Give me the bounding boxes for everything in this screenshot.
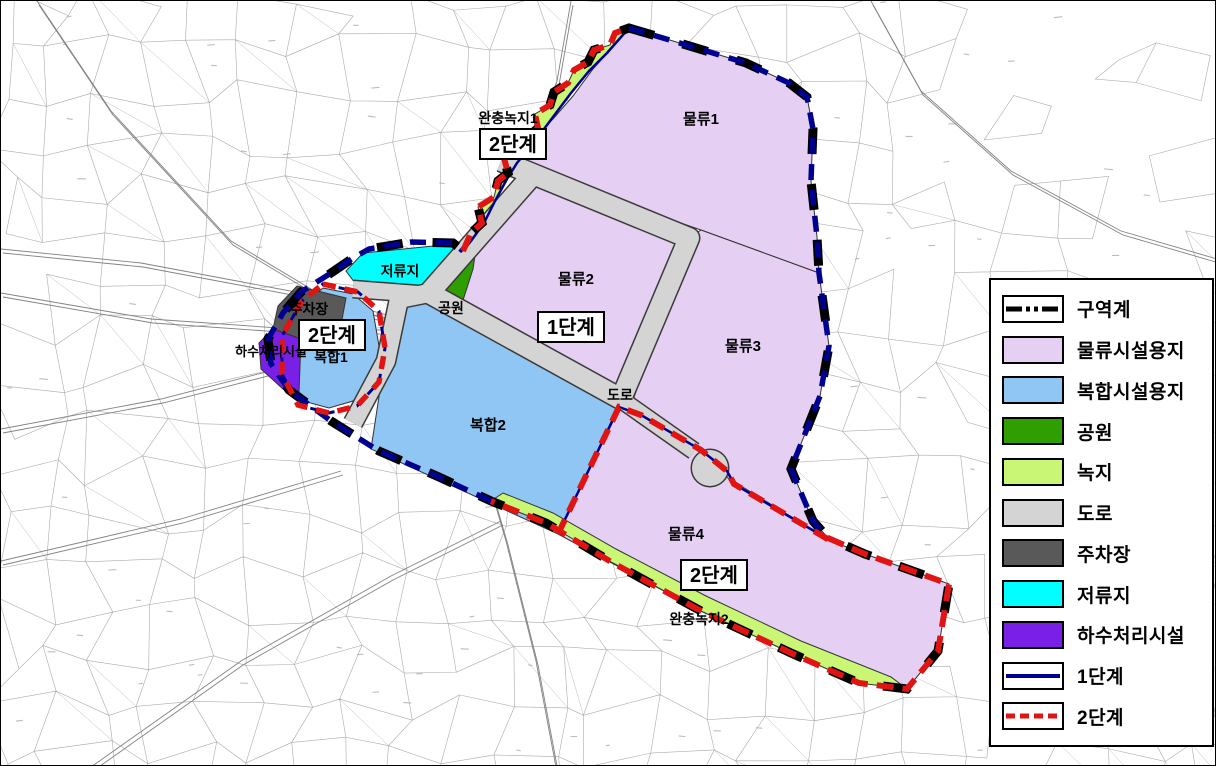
zone-label-sewage-plant: 하수처리시설 bbox=[235, 344, 307, 359]
zone-label-parking-lot: 주차장 bbox=[290, 301, 329, 317]
legend-item-detention-pond: 저류지 bbox=[991, 580, 1212, 608]
legend-swatch-road bbox=[1002, 499, 1064, 527]
zone-polygons bbox=[259, 28, 949, 689]
land-use-plan-map: 완충녹지1물류1저류지물류2주차장공원물류3하수처리시설복합1도로복합2물류4완… bbox=[0, 0, 1216, 766]
phase-marker-label: 2단계 bbox=[690, 564, 738, 587]
zone-label-logistics-4: 물류4 bbox=[668, 526, 705, 543]
zone-label-logistics-1: 물류1 bbox=[683, 111, 719, 128]
legend-label-phase-2: 2단계 bbox=[1077, 703, 1124, 730]
legend-swatch-logistics-site bbox=[1002, 336, 1064, 364]
zone-label-logistics-2: 물류2 bbox=[558, 271, 594, 288]
zone-label-mixed-1: 복합1 bbox=[314, 349, 348, 365]
phase-marker-label: 2단계 bbox=[308, 324, 356, 347]
legend-label-phase-1: 1단계 bbox=[1077, 662, 1124, 689]
legend-swatch-phase-1 bbox=[1002, 662, 1064, 690]
legend-item-logistics-site: 물류시설용지 bbox=[991, 336, 1212, 364]
legend: 구역계물류시설용지복합시설용지공원녹지도로주차장저류지하수처리시설1단계2단계 bbox=[989, 278, 1214, 747]
legend-label-logistics-site: 물류시설용지 bbox=[1077, 336, 1185, 363]
phase-marker-phase2-south: 2단계 bbox=[681, 560, 747, 590]
phase-marker-label: 2단계 bbox=[489, 133, 537, 156]
legend-item-green-space: 녹지 bbox=[991, 458, 1212, 486]
zone-label-detention-pond: 저류지 bbox=[381, 263, 420, 279]
legend-label-park: 공원 bbox=[1077, 418, 1113, 445]
legend-label-green-space: 녹지 bbox=[1077, 458, 1113, 485]
legend-swatch-parking bbox=[1002, 539, 1064, 567]
phase-marker-phase2-west: 2단계 bbox=[299, 320, 365, 350]
legend-swatch-green-space bbox=[1002, 458, 1064, 486]
legend-item-park: 공원 bbox=[991, 417, 1212, 445]
zone-label-road: 도로 bbox=[607, 387, 633, 403]
legend-swatch-detention-pond bbox=[1002, 580, 1064, 608]
legend-label-parking: 주차장 bbox=[1077, 540, 1131, 567]
zone-label-buffer-green-2: 완충녹지2 bbox=[669, 611, 729, 627]
legend-label-detention-pond: 저류지 bbox=[1077, 581, 1131, 608]
legend-swatch-sewage-plant bbox=[1002, 621, 1064, 649]
legend-swatch-park bbox=[1002, 417, 1064, 445]
phase-marker-phase2-top: 2단계 bbox=[480, 129, 546, 159]
legend-item-phase-2: 2단계 bbox=[991, 702, 1212, 730]
legend-label-sewage-plant: 하수처리시설 bbox=[1077, 621, 1185, 648]
legend-swatch-mixed-use-site bbox=[1002, 376, 1064, 404]
legend-item-phase-1: 1단계 bbox=[991, 662, 1212, 690]
zone-label-logistics-3: 물류3 bbox=[725, 338, 761, 355]
legend-item-parking: 주차장 bbox=[991, 539, 1212, 567]
legend-swatch-district-boundary bbox=[1002, 295, 1064, 323]
legend-item-district-boundary: 구역계 bbox=[991, 295, 1212, 323]
zone-label-park: 공원 bbox=[438, 300, 464, 316]
phase-marker-phase1-center: 1단계 bbox=[538, 312, 604, 342]
zone-label-buffer-green-1: 완충녹지1 bbox=[478, 110, 538, 126]
legend-item-mixed-use-site: 복합시설용지 bbox=[991, 376, 1212, 404]
legend-swatch-phase-2 bbox=[1002, 702, 1064, 730]
legend-label-road: 도로 bbox=[1077, 499, 1113, 526]
zone-label-mixed-2: 복합2 bbox=[470, 417, 506, 434]
legend-item-road: 도로 bbox=[991, 499, 1212, 527]
legend-item-sewage-plant: 하수처리시설 bbox=[991, 621, 1212, 649]
legend-label-mixed-use-site: 복합시설용지 bbox=[1077, 377, 1185, 404]
legend-label-district-boundary: 구역계 bbox=[1077, 295, 1131, 322]
phase-marker-label: 1단계 bbox=[547, 316, 595, 339]
